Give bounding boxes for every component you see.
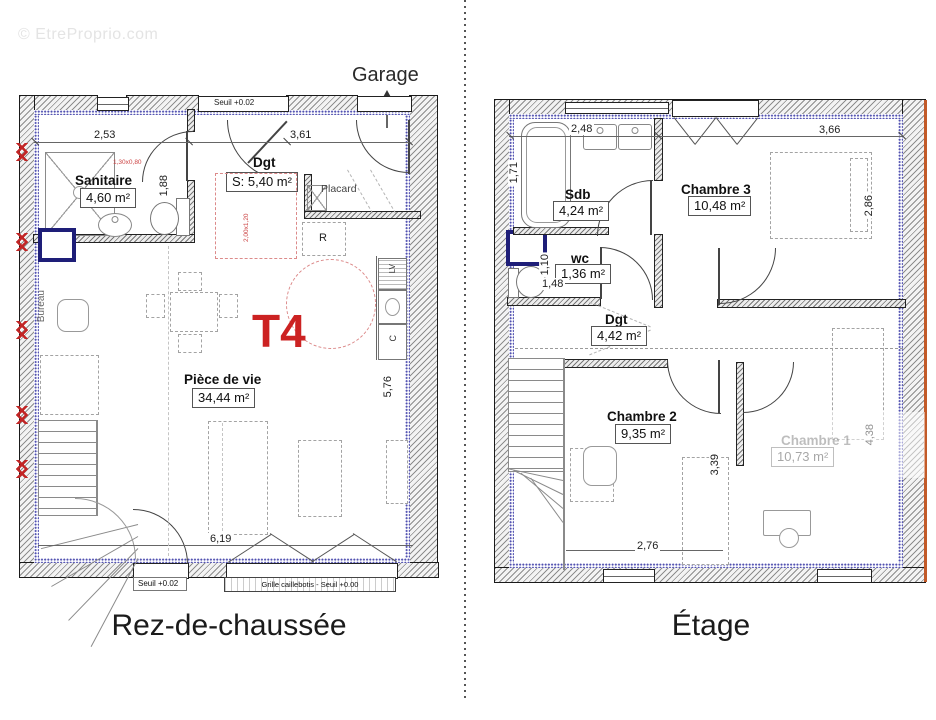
- insulation-band: [898, 119, 903, 563]
- dim-bottom-width: 6,19: [208, 533, 233, 545]
- axis-line: [515, 348, 903, 349]
- placard-label: Placard: [321, 184, 357, 195]
- dim-sdb-depth: 1,71: [508, 160, 520, 185]
- desk-chair: [583, 446, 617, 486]
- watermark: © EtreProprio.com: [18, 26, 158, 44]
- dim-chambre3-depth: 2,86: [863, 193, 875, 218]
- red-cross-marker: [16, 460, 28, 478]
- door-leaf: [408, 120, 410, 174]
- door-arc: [667, 360, 721, 414]
- red-cross-marker: [16, 321, 28, 339]
- window-navy: [38, 228, 76, 262]
- chair: [219, 294, 238, 318]
- red-cross-marker: [16, 233, 28, 251]
- cooker: C: [378, 324, 407, 360]
- piece-de-vie-area: 34,44 m²: [192, 388, 255, 408]
- bureau-label: Bureau: [36, 288, 47, 324]
- partition-wall: [655, 235, 662, 307]
- door-arc: [720, 248, 776, 304]
- dishwasher-letter: LV: [388, 264, 397, 273]
- closet-rod-line: [370, 170, 396, 214]
- door-leaf: [650, 180, 652, 235]
- seuil-top-label: Seuil +0.02: [212, 99, 256, 108]
- dim-line: [509, 136, 903, 137]
- dim-top-right: 3,61: [288, 129, 313, 141]
- toilet: [150, 202, 179, 235]
- wall: [903, 100, 925, 582]
- garage-door-opening: [357, 96, 412, 112]
- door-arc: [743, 362, 794, 413]
- garage-label: Garage: [352, 64, 419, 87]
- dim-kitchen-run: 5,76: [382, 374, 394, 399]
- wall: [495, 100, 509, 582]
- sanitaire-area: 4,60 m²: [80, 188, 136, 208]
- exterior-orange-line: [924, 100, 927, 582]
- chair: [178, 272, 202, 291]
- dim-line: [38, 545, 413, 546]
- stair-rail-arc: [75, 498, 136, 559]
- casement-line: [695, 117, 717, 145]
- sdb-area: 4,24 m²: [553, 201, 609, 221]
- partition-wall: [563, 360, 667, 367]
- window: [603, 569, 655, 583]
- sanitaire-name: Sanitaire: [75, 174, 132, 188]
- dgt-name: Dgt: [605, 313, 628, 327]
- fridge-letter: R: [317, 232, 329, 244]
- chambre3-area: 10,48 m²: [688, 196, 751, 216]
- grille-caillebotis-box: Grille caillebotis - Seuil +0.00: [224, 577, 396, 592]
- plans-divider: [464, 0, 466, 700]
- partition-wall: [718, 300, 905, 307]
- sdb-name: Sdb: [565, 188, 591, 202]
- cooker-letter: C: [388, 335, 398, 342]
- partition-wall: [655, 119, 662, 180]
- red-dashed-zone: [215, 173, 297, 259]
- red-cross-marker: [16, 406, 28, 424]
- desk-chair: [57, 299, 89, 332]
- door-arc: [133, 509, 188, 564]
- upper-floor-title: Étage: [495, 608, 927, 644]
- sink: [98, 213, 132, 237]
- dim-wc-depth: 1,10: [539, 252, 551, 277]
- dim-chambre2-width: 2,76: [635, 540, 660, 552]
- partition-wall: [514, 228, 608, 234]
- door-leaf: [718, 248, 720, 305]
- counter-line: [376, 256, 377, 360]
- coffee-table: [298, 440, 342, 517]
- chambre2-name: Chambre 2: [607, 410, 677, 424]
- tv-unit: [386, 440, 408, 504]
- dining-table: [170, 292, 218, 332]
- window: [817, 569, 872, 583]
- dim-wc-width: 1,48: [540, 278, 565, 290]
- piece-de-vie-name: Pièce de vie: [184, 373, 261, 387]
- window: [97, 97, 129, 111]
- casement-line: [674, 117, 696, 145]
- dim-sanitaire-depth: 1,88: [158, 173, 170, 198]
- dim-line: [34, 142, 410, 143]
- wall: [410, 96, 437, 577]
- wardrobe: [682, 457, 729, 565]
- dgt-area: 4,42 m²: [591, 326, 647, 346]
- casement-line: [737, 117, 759, 145]
- dim-chambre2-depth: 3,39: [709, 452, 721, 477]
- chambre3-window: [672, 100, 759, 117]
- chambre2-area: 9,35 m²: [615, 424, 671, 444]
- bay-size-note: 2,00x1,20: [244, 196, 251, 242]
- sink: [618, 124, 652, 150]
- desk-chair: [779, 528, 799, 548]
- partition-wall: [188, 110, 194, 131]
- floor-plan-image: © EtreProprio.com Garage Rez-de-chaussée…: [0, 0, 936, 720]
- sofa-line: [222, 423, 223, 531]
- staircase: [508, 358, 565, 472]
- stair-winder: [530, 478, 563, 523]
- casement-line: [716, 117, 738, 145]
- dgt-name: Dgt: [253, 156, 276, 170]
- seuil-bottom-box: Seuil +0.02: [133, 577, 187, 591]
- dim-top-right: 3,66: [817, 124, 842, 136]
- window: [565, 102, 669, 114]
- dim-top-left: 2,53: [92, 129, 117, 141]
- insulation-band: [509, 119, 514, 563]
- kitchen-sink-bowl: [385, 298, 400, 316]
- red-cross-marker: [16, 143, 28, 161]
- wall: [287, 96, 357, 110]
- shower-size-note: 1,30x0,80: [113, 160, 142, 167]
- sofa: [208, 421, 268, 535]
- chair: [146, 294, 165, 318]
- type-label: T4: [252, 308, 306, 354]
- chambre3-name: Chambre 3: [681, 183, 751, 197]
- ground-floor-plan: Seuil +0.02 Placard Sanitaire 4,60 m² 1,…: [20, 96, 438, 596]
- axis-line: [168, 246, 169, 556]
- wall: [127, 96, 198, 110]
- ground-floor-title: Rez-de-chaussée: [20, 608, 438, 644]
- door-leaf: [718, 360, 720, 413]
- partition-wall: [305, 212, 420, 218]
- chair: [178, 334, 202, 353]
- door-arc: [356, 120, 409, 173]
- upper-floor-plan: Sdb 4,24 m² wc 1,36 m² Chambre 3 10,48 m…: [495, 100, 927, 592]
- dim-top-left: 2,48: [569, 123, 594, 135]
- dishwasher: LV: [378, 258, 407, 290]
- partition-wall: [508, 298, 600, 305]
- stair-wall: [563, 358, 565, 570]
- desk: [40, 355, 99, 415]
- scan-fade-overlay: [767, 412, 925, 478]
